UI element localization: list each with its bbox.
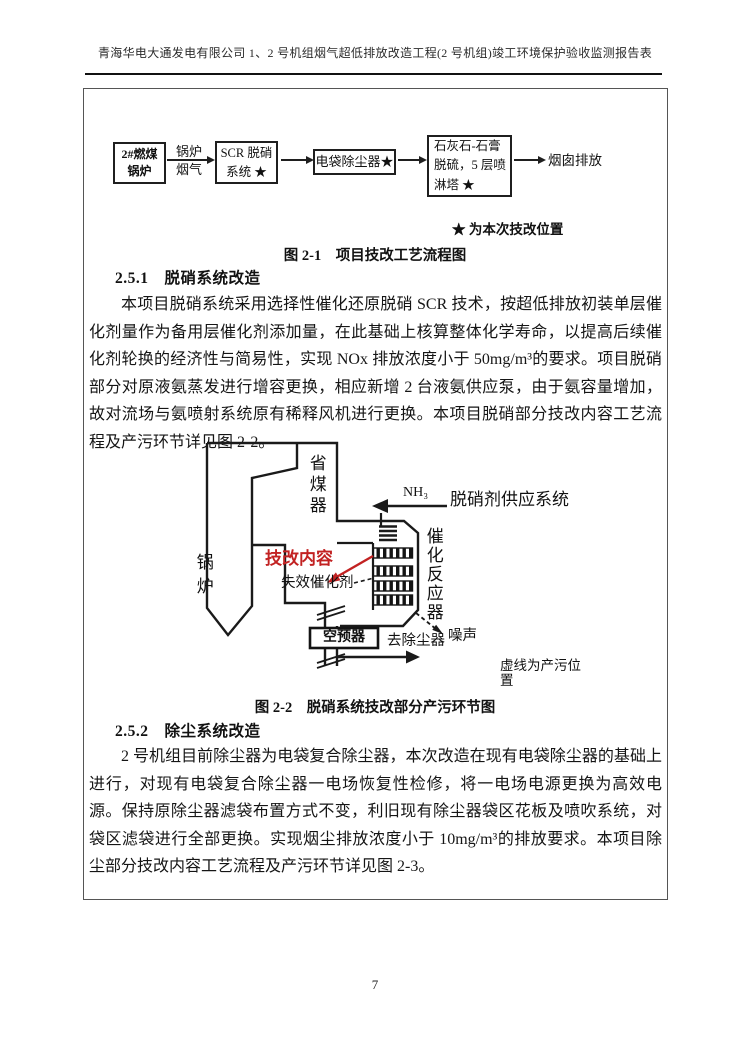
ammonia-injection-grid <box>379 527 397 541</box>
flow-arrow-3 <box>398 159 419 161</box>
label-modification-content: 技改内容 <box>265 550 333 569</box>
flow-outlet-label: 烟囱排放 <box>548 152 602 170</box>
boiler-outline <box>207 443 297 635</box>
catalyst-layer-2 <box>374 566 413 576</box>
flow-box-scr-system: SCR 脱硝 系统 ★ <box>215 141 278 184</box>
catalyst-layer-1 <box>374 548 413 558</box>
diagram-canvas <box>175 438 590 688</box>
paragraph-denitration: 本项目脱硝系统采用选择性催化还原脱硝 SCR 技术，按超低排放初装单层催化剂量作… <box>89 291 662 457</box>
nh3-arrowhead-icon <box>372 499 388 513</box>
figure-2-1-caption: 图 2-1 项目技改工艺流程图 <box>0 244 750 265</box>
label-boiler: 锅炉 <box>193 553 212 601</box>
label-economizer: 省煤器 <box>306 454 325 517</box>
label-spent-catalyst: 失效催化剂 <box>281 576 354 592</box>
figure-2-2-caption: 图 2-2 脱硝系统技改部分产污环节图 <box>0 696 750 717</box>
flow-arrow-4 <box>514 159 538 161</box>
section-heading-2-5-2: 2.5.2 除尘系统改造 <box>115 719 261 741</box>
catalyst-layer-3 <box>374 581 413 591</box>
label-air-preheater: 空预器 <box>310 628 378 648</box>
header-rule <box>85 73 662 75</box>
catalyst-layer-4 <box>374 595 413 605</box>
flow-legend-star-note: ★ 为本次技改位置 <box>452 221 563 239</box>
label-nh3: NH₃ <box>403 485 428 500</box>
flow-box-boiler: 2#燃煤 锅炉 <box>113 142 166 184</box>
label-to-dust-collector: 去除尘器 <box>387 634 445 650</box>
report-page: 青海华电大通发电有限公司 1、2 号机组烟气超低排放改造工程(2 号机组)竣工环… <box>0 0 750 1060</box>
paragraph-dust-removal: 2 号机组目前除尘器为电袋复合除尘器，本次改造在现有电袋除尘器的基础上进行，对现… <box>89 743 662 881</box>
page-number: 7 <box>0 977 750 993</box>
flow-arrow-2 <box>281 159 306 161</box>
document-header-title: 青海华电大通发电有限公司 1、2 号机组烟气超低排放改造工程(2 号机组)竣工环… <box>0 44 750 61</box>
spent-catalyst-pointer <box>354 578 374 583</box>
outlet-arrowhead-icon <box>406 651 420 664</box>
flow-box-desulfurization: 石灰石-石膏 脱硫，5 层喷 淋塔 ★ <box>427 135 512 197</box>
flow-arrow-label-flue-gas: 锅炉 烟气 <box>170 143 208 179</box>
figure-2-2-diagram: 锅炉 省煤器 NH₃ 脱硝剂供应系统 技改内容 失效催化剂 催化反应器 空预器 … <box>175 438 590 688</box>
flow-box-dust-collector: 电袋除尘器★ <box>313 149 396 175</box>
label-denitration-supply-system: 脱硝剂供应系统 <box>450 491 569 510</box>
label-catalytic-reactor: 催化反应器 <box>423 527 442 622</box>
section-heading-2-5-1: 2.5.1 脱硝系统改造 <box>115 266 261 288</box>
label-noise: 噪声 <box>448 629 477 645</box>
label-dashed-line-note: 虚线为产污位置 <box>500 659 590 689</box>
